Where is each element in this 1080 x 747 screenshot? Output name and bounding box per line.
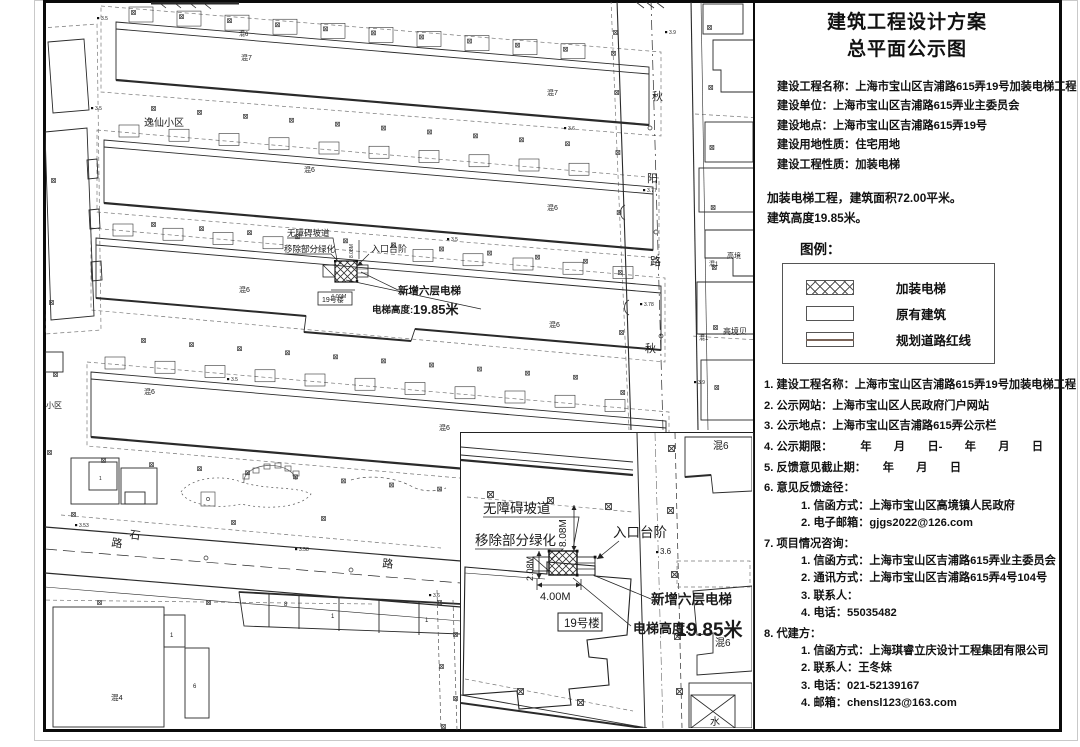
tree-icon	[382, 359, 386, 363]
map-label: 混6	[547, 203, 558, 212]
tree-icon	[244, 114, 248, 118]
legend-row: 原有建筑	[783, 306, 994, 322]
tree-icon	[150, 463, 154, 467]
notice-subitem: 3. 电话：021-52139167	[801, 678, 1053, 695]
title-line-1: 建筑工程设计方案	[755, 9, 1059, 36]
map-label: 混6	[439, 423, 450, 432]
map-label: 3.77	[647, 188, 657, 194]
map-label: 19.85米	[413, 302, 460, 317]
map-label: 混6	[239, 30, 249, 38]
porch-block	[463, 254, 483, 266]
spot-elevation-dot	[227, 378, 229, 380]
tree-icon	[526, 371, 530, 375]
spot-elevation-dot	[656, 551, 658, 553]
notice-subitem: 4. 电话：55035482	[801, 605, 1053, 622]
map-label: 8.08M	[558, 519, 569, 547]
porch-block	[305, 374, 325, 386]
tree-icon	[520, 138, 524, 142]
porch-block	[155, 361, 175, 373]
porch-block	[605, 400, 625, 412]
tree-icon	[442, 725, 446, 729]
tree-icon	[708, 26, 712, 30]
tree-icon	[615, 91, 619, 95]
tree-icon	[344, 239, 348, 243]
porch-block	[213, 233, 233, 245]
porch-block	[569, 163, 589, 175]
porch-block	[219, 134, 239, 146]
map-label: 入口台阶	[371, 243, 407, 254]
map-label: 混6	[239, 285, 250, 294]
porch-block	[263, 237, 283, 249]
spot-elevation-dot	[643, 189, 645, 191]
porch-block	[419, 151, 439, 163]
spot-elevation-dot	[429, 594, 431, 596]
porch-block	[555, 395, 575, 407]
notice-item: 6. 意见反馈途径：	[764, 480, 1053, 497]
map-label: 秋	[652, 89, 663, 103]
info-panel: 建筑工程设计方案 总平面公示图 建设工程名称：上海市宝山区吉浦路615弄19号加…	[755, 0, 1059, 730]
tree-icon	[98, 601, 102, 605]
tree-icon	[440, 665, 444, 669]
tree-icon	[714, 326, 718, 330]
tree-icon	[488, 492, 494, 498]
tree-icon	[238, 347, 242, 351]
notice-subitem: 2. 电子邮箱：gjgs2022@126.com	[801, 515, 1053, 532]
map-label: 混7	[241, 53, 252, 62]
porch-block	[269, 138, 289, 150]
info-line: 建设用地性质：住宅用地	[777, 136, 1059, 155]
map-label: 混6	[713, 440, 729, 452]
tree-icon	[428, 130, 432, 134]
tree-icon	[488, 251, 492, 255]
map-label: 3.5	[451, 237, 458, 243]
tree-icon	[190, 343, 194, 347]
map-label: 6	[193, 684, 197, 690]
project-summary: 加装电梯工程，建筑面积72.00平米。建筑高度19.85米。	[767, 189, 1059, 228]
porch-block	[113, 224, 133, 236]
tree-icon	[468, 39, 472, 43]
tree-icon	[672, 572, 678, 578]
porch-block	[163, 228, 183, 240]
tree-icon	[48, 451, 52, 455]
map-label: 3.6	[568, 126, 575, 132]
tree-icon	[334, 355, 338, 359]
map-label: 路	[382, 557, 394, 571]
tree-icon	[198, 110, 202, 114]
map-label: 混6	[144, 387, 155, 396]
tree-icon	[198, 467, 202, 471]
info-line: 建设工程性质：加装电梯	[777, 156, 1059, 175]
tree-icon	[614, 31, 618, 35]
tree-icon	[574, 375, 578, 379]
porch-block	[255, 370, 275, 382]
porch-block	[413, 250, 433, 262]
tree-icon	[152, 107, 156, 111]
map-label: 混1	[699, 334, 709, 342]
notice-item: 5. 反馈意见截止期： 年 月 日	[764, 460, 1053, 477]
tree-icon	[276, 23, 280, 27]
map-label: 路	[650, 255, 661, 268]
spot-elevation-dot	[640, 303, 642, 305]
spot-elevation-dot	[295, 548, 297, 550]
porch-block	[469, 155, 489, 167]
map-label: 混6	[549, 320, 560, 329]
tree-icon	[54, 373, 58, 377]
map-label: 3.5	[101, 16, 108, 22]
tree-icon	[132, 11, 136, 15]
tree-icon	[564, 47, 568, 51]
notice-sublist: 1. 信函方式：上海市宝山区高境镇人民政府2. 电子邮箱：gjgs2022@12…	[764, 498, 1053, 533]
map-label: 新增六层电梯	[398, 284, 461, 297]
notice-item: 3. 公示地点：上海市宝山区吉浦路615弄公示栏	[764, 418, 1053, 435]
tree-icon	[290, 118, 294, 122]
porch-block	[513, 258, 533, 270]
tree-icon	[618, 271, 622, 275]
tree-icon	[668, 508, 674, 514]
notice-item: 4. 公示期限： 年 月 日- 年 月 日	[764, 439, 1053, 456]
notice-item: 7. 项目情况咨询：	[764, 536, 1053, 553]
map-label: 1	[99, 476, 102, 482]
inset-tree-symbols	[488, 446, 683, 706]
notice-subitem: 1. 信函方式：上海琪睿立庆设计工程集团有限公司	[801, 643, 1053, 660]
tree-icon	[584, 259, 588, 263]
map-label: 阳	[647, 172, 658, 185]
map-label: 4.00M	[331, 294, 347, 300]
porch-block	[405, 383, 425, 395]
tree-icon	[616, 151, 620, 155]
tree-icon	[669, 446, 675, 452]
tree-icon	[152, 223, 156, 227]
tree-icon	[438, 487, 442, 491]
notice-item: 8. 代建方：	[764, 626, 1053, 643]
tree-icon	[336, 122, 340, 126]
map-label: 逸仙小区	[144, 116, 184, 129]
map-label: 3.9	[669, 30, 676, 36]
porch-block	[369, 146, 389, 158]
notice-sublist: 1. 信函方式：上海琪睿立庆设计工程集团有限公司2. 联系人：王冬妹3. 电话：…	[764, 643, 1053, 712]
map-label: 入口台阶	[613, 525, 667, 540]
tree-icon	[180, 15, 184, 19]
legend-row: 加装电梯	[783, 280, 994, 296]
legend: 加装电梯原有建筑规划道路红线	[782, 263, 995, 364]
notice-subitem: 4. 邮箱：chensl123@163.com	[801, 695, 1053, 712]
map-label: 8.08M	[349, 244, 355, 258]
map-label: 3.53	[79, 523, 89, 529]
legend-title: 图例：	[800, 238, 1059, 258]
notice-subitem: 2. 通讯方式：上海市宝山区吉浦路615弄4号104号	[801, 570, 1053, 587]
tree-icon	[420, 35, 424, 39]
map-label: 混1	[709, 260, 719, 268]
project-info: 建设工程名称：上海市宝山区吉浦路615弄19号加装电梯工程建设单位：上海市宝山区…	[777, 78, 1059, 175]
map-label: 1	[170, 633, 174, 639]
redline-swatch-icon	[806, 332, 854, 347]
tree-icon	[200, 227, 204, 231]
spot-elevation-dot	[564, 127, 566, 129]
map-label: 移除部分绿化	[475, 533, 556, 548]
summary-line: 加装电梯工程，建筑面积72.00平米。	[767, 189, 1059, 209]
map-label: 4.00M	[540, 591, 571, 603]
inset-building-19	[463, 550, 631, 709]
porch-block	[455, 387, 475, 399]
map-label: 高境	[727, 251, 741, 260]
porch-block	[613, 267, 633, 279]
tree-icon	[286, 351, 290, 355]
tree-icon	[142, 339, 146, 343]
inset-drawing: 19号楼 无障碍坡道移除部分绿化入口台阶新增六层电梯电梯高度:19.85米混6混…	[461, 433, 752, 728]
spot-elevation-dot	[91, 107, 93, 109]
info-line: 建设地点：上海市宝山区吉浦路615弄19号	[777, 117, 1059, 136]
notice-list: 1. 建设工程名称：上海市宝山区吉浦路615弄19号加装电梯工程2. 公示网站：…	[764, 377, 1053, 712]
map-label: 混7	[547, 88, 558, 97]
tree-icon	[711, 206, 715, 210]
tree-icon	[578, 700, 584, 706]
page-title: 建筑工程设计方案 总平面公示图	[755, 9, 1059, 63]
plain-swatch-icon	[806, 306, 854, 321]
tree-icon	[454, 633, 458, 637]
map-label: 3.6	[660, 547, 672, 556]
legend-label: 加装电梯	[896, 278, 946, 297]
tree-icon	[715, 386, 719, 390]
notice-item: 1. 建设工程名称：上海市宝山区吉浦路615弄19号加装电梯工程	[764, 377, 1053, 394]
tree-icon	[454, 697, 458, 701]
map-label: 3.9	[698, 380, 705, 386]
porch-block	[169, 129, 189, 141]
map-label: 3.78	[644, 302, 654, 308]
porch-block	[319, 142, 339, 154]
tree-icon	[324, 27, 328, 31]
tree-icon	[382, 126, 386, 130]
tree-icon	[440, 247, 444, 251]
map-label: 混6	[304, 165, 315, 174]
tree-icon	[474, 134, 478, 138]
tree-icon	[322, 517, 326, 521]
tree-icon	[606, 504, 612, 510]
tree-icon	[390, 483, 394, 487]
detail-inset: 19号楼 无障碍坡道移除部分绿化入口台阶新增六层电梯电梯高度:19.85米混6混…	[460, 432, 754, 730]
info-line: 建设工程名称：上海市宝山区吉浦路615弄19号加装电梯工程	[777, 78, 1059, 97]
porch-block	[205, 366, 225, 378]
map-label: 3.5	[231, 377, 238, 383]
tree-icon	[52, 179, 56, 183]
map-label: 混4	[111, 693, 123, 702]
tree-icon	[248, 231, 252, 235]
map-label: 3.58	[299, 547, 309, 553]
map-label: 19.85米	[676, 618, 744, 641]
map-label: 秋	[645, 341, 656, 355]
notice-subitem: 2. 联系人：王冬妹	[801, 660, 1053, 677]
notice-subitem: 3. 联系人：	[801, 588, 1053, 605]
tree-icon	[207, 601, 211, 605]
tree-icon	[232, 521, 236, 525]
info-line: 建设单位：上海市宝山区吉浦路615弄业主委员会	[777, 97, 1059, 116]
map-label: 小区	[46, 401, 62, 410]
tree-icon	[516, 43, 520, 47]
notice-sublist: 1. 信函方式：上海市宝山区吉浦路615弄业主委员会2. 通讯方式：上海市宝山区…	[764, 553, 1053, 622]
tree-icon	[709, 86, 713, 90]
tree-icon	[710, 146, 714, 150]
spot-elevation-dot	[665, 31, 667, 33]
porch-block	[105, 357, 125, 369]
tree-icon	[566, 142, 570, 146]
legend-label: 原有建筑	[896, 304, 946, 323]
map-label: 无障碍坡道	[483, 501, 551, 516]
map-label: 2.08M	[525, 556, 535, 581]
map-label: 路	[111, 536, 124, 550]
summary-line: 建筑高度19.85米。	[767, 209, 1059, 229]
spot-elevation-dot	[447, 238, 449, 240]
tree-icon	[620, 331, 624, 335]
tree-icon	[72, 513, 76, 517]
porch-block	[505, 391, 525, 403]
tree-icon	[372, 31, 376, 35]
porch-block	[119, 125, 139, 137]
tree-icon	[342, 479, 346, 483]
porch-block	[355, 378, 375, 390]
map-label: 电梯高度:	[372, 304, 413, 316]
map-label: 高境贝	[723, 326, 747, 336]
building-19-label-inset: 19号楼	[564, 616, 600, 630]
legend-row: 规划道路红线	[783, 332, 994, 348]
map-label: 移除部分绿化	[284, 244, 336, 254]
notice-subitem: 1. 信函方式：上海市宝山区高境镇人民政府	[801, 498, 1053, 515]
tree-icon	[612, 51, 616, 55]
map-label: 无障碍坡道	[287, 228, 330, 238]
crosshatch-swatch-icon	[806, 280, 854, 295]
spot-elevation-dot	[694, 381, 696, 383]
spot-elevation-dot	[75, 524, 77, 526]
porch-block	[563, 262, 583, 274]
map-label: 新增六层电梯	[651, 591, 732, 607]
map-label: 石	[129, 529, 142, 542]
map-label: 水	[710, 716, 720, 728]
map-label: 混6	[715, 637, 731, 649]
porch-block	[519, 159, 539, 171]
notice-subitem: 1. 信函方式：上海市宝山区吉浦路615弄业主委员会	[801, 553, 1053, 570]
map-label: 3.5	[95, 106, 102, 112]
tree-icon	[228, 19, 232, 23]
notice-item: 2. 公示网站：上海市宝山区人民政府门户网站	[764, 398, 1053, 415]
tree-icon	[621, 391, 625, 395]
tree-icon	[478, 367, 482, 371]
map-label: 3.6	[433, 593, 440, 599]
title-line-2: 总平面公示图	[755, 36, 1059, 63]
tree-icon	[430, 363, 434, 367]
spot-elevation-dot	[97, 17, 99, 19]
tree-icon	[677, 689, 683, 695]
map-label: 1	[425, 618, 429, 624]
tree-icon	[536, 255, 540, 259]
map-label: 1	[331, 614, 335, 620]
legend-label: 规划道路红线	[896, 330, 971, 349]
